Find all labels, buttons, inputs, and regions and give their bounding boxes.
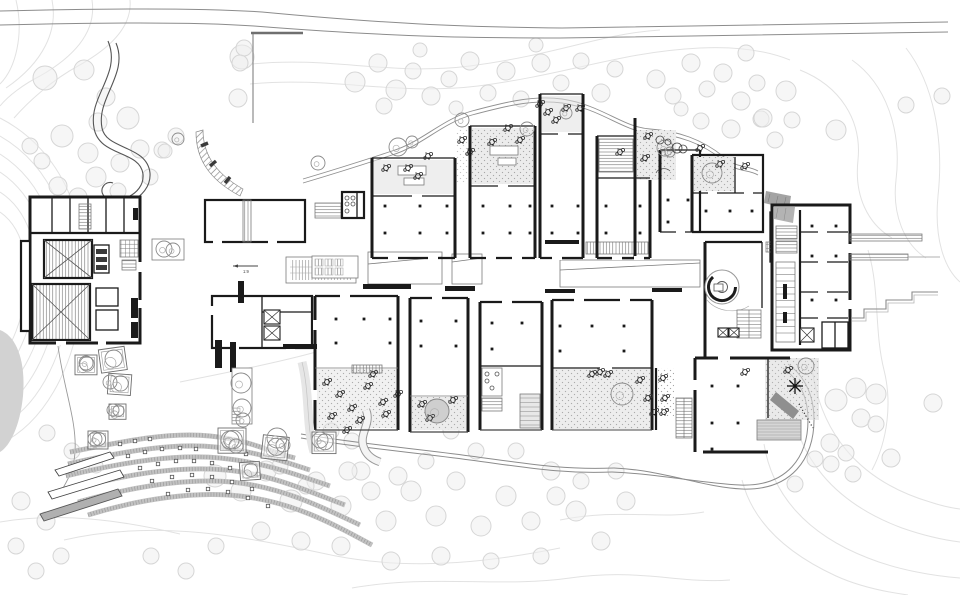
column-dot: [384, 232, 387, 235]
terrace-planter: [126, 454, 129, 457]
scribble-dot: [660, 374, 661, 375]
scribble-dot: [665, 400, 666, 401]
scribble-dot: [563, 104, 564, 105]
terrace-planter: [210, 475, 213, 478]
tree: [376, 98, 392, 114]
tree: [232, 55, 248, 71]
scribble-dot: [645, 160, 646, 161]
scribble: [343, 431, 346, 434]
tree: [447, 472, 465, 490]
terrace-planter: [138, 466, 141, 469]
contour-line: [764, 444, 960, 578]
scribble-dot: [329, 412, 330, 413]
southeast-hall: [693, 356, 819, 452]
scribble-dot: [580, 110, 581, 111]
terrace-planter: [174, 459, 177, 462]
column-dot: [605, 205, 608, 208]
column-dot: [446, 205, 449, 208]
terrace-planter: [228, 466, 231, 469]
tree: [749, 75, 765, 91]
tree: [405, 63, 421, 79]
scribble-dot: [398, 396, 399, 397]
terrace-band: [88, 495, 372, 545]
column-dot: [335, 318, 338, 321]
scribble-dot: [425, 152, 426, 153]
site-plan-page: 1:9: [0, 0, 960, 595]
column-dot: [389, 342, 392, 345]
column-dot: [446, 232, 449, 235]
tree: [339, 462, 357, 480]
column-dot: [751, 210, 754, 213]
tree: [852, 409, 870, 427]
terrace-planter: [226, 490, 229, 493]
scribble-dot: [508, 130, 509, 131]
scribble: [741, 167, 744, 170]
tree: [432, 547, 450, 565]
tree: [532, 54, 550, 72]
scribble-dot: [617, 148, 618, 149]
terrace-planter: [210, 461, 213, 464]
terrace-planter: [170, 475, 173, 478]
classroom-block-3: [540, 94, 583, 260]
column-dot: [737, 385, 740, 388]
stair-band: [599, 139, 633, 172]
scribble-dot: [637, 376, 638, 377]
tree: [529, 38, 543, 52]
scribble-dot: [383, 164, 384, 165]
circle-tree: [311, 156, 325, 170]
stair-arc-band: [196, 130, 243, 196]
scribble-dot: [642, 154, 643, 155]
terrace-planter: [143, 450, 146, 453]
scribble-dot: [608, 376, 609, 377]
tree: [471, 516, 491, 536]
column-dot: [363, 318, 366, 321]
tree: [483, 553, 499, 569]
scribble-dot: [600, 374, 601, 375]
scribble-dot: [386, 416, 387, 417]
column-dot: [491, 348, 494, 351]
scribble-dot: [505, 124, 506, 125]
tree: [362, 482, 380, 500]
scribble-dot: [605, 370, 606, 371]
column-dot: [551, 205, 554, 208]
tree: [51, 125, 73, 147]
scribble-dot: [337, 390, 338, 391]
elevator-shafts: [264, 310, 814, 342]
tree: [807, 451, 823, 467]
scribble-dot: [467, 148, 468, 149]
scribble-dot: [548, 114, 549, 115]
tree: [776, 81, 796, 101]
column-dot: [705, 210, 708, 213]
east-wall-strip: [850, 234, 922, 241]
tree: [34, 153, 50, 169]
tree: [382, 552, 400, 570]
scribble-dot: [577, 104, 578, 105]
scribble-dot: [415, 172, 416, 173]
scribble-dot: [742, 162, 743, 163]
scribble-dot: [427, 414, 428, 415]
tree: [608, 463, 624, 479]
planter: [98, 346, 127, 373]
tree: [882, 449, 900, 467]
elevator-box: [729, 328, 739, 337]
scribble-dot: [742, 368, 743, 369]
tree: [866, 384, 886, 404]
tree: [480, 85, 496, 101]
tree: [28, 563, 44, 579]
tree: [573, 473, 589, 489]
column-dot: [687, 199, 690, 202]
tree: [714, 64, 732, 82]
scribble-dot: [489, 138, 490, 139]
tree: [898, 97, 914, 113]
curved-entry-stair: [196, 130, 243, 196]
column-dot: [529, 232, 532, 235]
elevator-box: [718, 328, 728, 337]
terrace-planter: [206, 487, 209, 490]
column-dot: [639, 232, 642, 235]
column-dot: [521, 322, 524, 325]
column-dot: [811, 255, 814, 258]
contour-line: [742, 480, 908, 595]
scribble-dot: [370, 370, 371, 371]
scribble-dot: [662, 394, 663, 395]
column-dot: [835, 299, 838, 302]
tree: [86, 167, 106, 187]
contour-line: [852, 60, 926, 258]
scribble-dot: [566, 110, 567, 111]
tree: [426, 506, 446, 526]
scribble-dot: [697, 144, 698, 145]
scribble: [536, 105, 539, 108]
tree: [592, 532, 610, 550]
terrace-planter: [192, 459, 195, 462]
path-line: [0, 23, 948, 38]
terrace-planter: [133, 439, 136, 442]
east-wing: [772, 205, 940, 350]
tree: [738, 45, 754, 61]
scribble-dot: [360, 422, 361, 423]
tree: [647, 70, 665, 88]
planter: [75, 355, 97, 375]
tree-planters: [75, 346, 336, 480]
terrace-planter: [186, 488, 189, 491]
tree: [117, 107, 139, 129]
tree: [693, 113, 709, 129]
column-dot: [737, 422, 740, 425]
tree: [422, 87, 440, 105]
scribble-dot: [545, 108, 546, 109]
column-dot: [559, 350, 562, 353]
tree: [158, 144, 172, 158]
column-dot: [509, 205, 512, 208]
scribble-dot: [373, 376, 374, 377]
scribble-dot: [405, 164, 406, 165]
tree: [547, 487, 565, 505]
scribble-dot: [324, 378, 325, 379]
scribble-dot: [470, 154, 471, 155]
tree: [508, 443, 524, 459]
stepped-retaining-wall: [852, 292, 938, 318]
tree: [22, 138, 38, 154]
column-dot: [639, 205, 642, 208]
terrace-planter: [230, 480, 233, 483]
column-dot: [811, 299, 814, 302]
scribble-dot: [648, 138, 649, 139]
tree: [143, 548, 159, 564]
column-dot: [577, 232, 580, 235]
scribble-dot: [365, 382, 366, 383]
scribble-dot: [462, 142, 463, 143]
contour-line: [868, 250, 888, 470]
tree: [533, 548, 549, 564]
scribble-dot: [347, 432, 348, 433]
tree: [823, 456, 839, 472]
terrace-planter: [166, 492, 169, 495]
scribble-dot: [340, 396, 341, 397]
scribble-dot: [717, 160, 718, 161]
terrace-planter: [266, 504, 269, 507]
column-dot: [605, 232, 608, 235]
planter: [312, 432, 336, 454]
tree: [39, 425, 55, 441]
tree: [838, 445, 854, 461]
terrace-planter: [190, 473, 193, 476]
scribble-dot: [664, 414, 665, 415]
contour-line: [0, 518, 180, 534]
column-dot: [419, 232, 422, 235]
scribble-dot: [395, 390, 396, 391]
scribble-dot: [537, 100, 538, 101]
tree: [825, 389, 847, 411]
tree: [441, 71, 457, 87]
scribble-dot: [520, 142, 521, 143]
scribble-dot: [517, 136, 518, 137]
column-dot: [667, 199, 670, 202]
column-dot: [384, 205, 387, 208]
tree: [8, 538, 24, 554]
tree: [592, 84, 610, 102]
tree: [784, 112, 800, 128]
tree: [682, 54, 700, 72]
tree: [496, 486, 516, 506]
tree: [699, 81, 715, 97]
tree: [12, 492, 30, 510]
scribble-dot: [663, 380, 664, 381]
column-dot: [811, 225, 814, 228]
scribble-dot: [645, 132, 646, 133]
tree: [33, 66, 57, 90]
tree: [665, 88, 681, 104]
tree: [401, 481, 421, 501]
scribble-dot: [380, 398, 381, 399]
small-circle: [679, 145, 687, 153]
louver-canopy: [315, 203, 341, 218]
tree: [522, 512, 540, 530]
south-block-4: [552, 298, 652, 430]
scribble-dot: [344, 426, 345, 427]
tree: [617, 492, 635, 510]
scribble-dot: [450, 396, 451, 397]
column-dot: [835, 255, 838, 258]
tree: [376, 511, 396, 531]
contour-line: [906, 48, 960, 282]
tree: [497, 62, 515, 80]
tree: [767, 132, 783, 148]
column-dot: [529, 205, 532, 208]
scribble-dot: [645, 394, 646, 395]
scribble-dot: [459, 136, 460, 137]
tree: [229, 89, 247, 107]
scribble-dot: [654, 414, 655, 415]
planter: [239, 461, 260, 480]
column-dot: [455, 320, 458, 323]
scribble-dot: [418, 178, 419, 179]
south-block-3: [480, 300, 542, 430]
scribble-dot: [620, 154, 621, 155]
tree: [53, 548, 69, 564]
column-dot: [491, 322, 494, 325]
scribble-dot: [745, 374, 746, 375]
scribble-dot: [788, 372, 789, 373]
terrace-planter: [150, 479, 153, 482]
scribble-dot: [453, 402, 454, 403]
scribble-dot: [327, 384, 328, 385]
scribble-dot: [589, 370, 590, 371]
ramp-annotation: 1:9: [233, 264, 258, 274]
tree: [178, 563, 194, 579]
tree: [89, 113, 107, 131]
tree: [78, 143, 98, 163]
column-dot: [623, 350, 626, 353]
scribble-dot: [700, 150, 701, 151]
column-dot: [623, 325, 626, 328]
column-dot: [389, 318, 392, 321]
scribble-dot: [349, 404, 350, 405]
column-dot: [335, 342, 338, 345]
palm-tree: [787, 378, 803, 394]
column-dot: [482, 232, 485, 235]
scribble-dot: [352, 410, 353, 411]
scribble-dot: [640, 382, 641, 383]
scribble-dot: [492, 144, 493, 145]
column-dot: [455, 345, 458, 348]
scribble-dot: [383, 404, 384, 405]
scribble-dot: [597, 368, 598, 369]
ramp-slope-label: 1:9: [243, 269, 249, 274]
terrace-planter: [194, 447, 197, 450]
scribble-dot: [383, 410, 384, 411]
path-line: [0, 9, 948, 28]
tree: [573, 53, 589, 69]
auditorium-building: [21, 197, 184, 345]
tree: [821, 434, 839, 452]
circle-tree-inner: [314, 162, 319, 167]
palm-center: [793, 384, 796, 387]
column-dot: [420, 320, 423, 323]
scribble-dot: [553, 116, 554, 117]
scribble-dot: [332, 418, 333, 419]
tree: [607, 61, 623, 77]
elevator-box: [264, 326, 280, 340]
tree: [924, 394, 942, 412]
east-wall-strip: [850, 254, 908, 260]
stair-court-strip: [656, 368, 692, 438]
tree: [332, 537, 350, 555]
tree: [732, 92, 750, 110]
column-dot: [835, 225, 838, 228]
contour-line: [0, 0, 19, 84]
column-dot: [509, 232, 512, 235]
tree: [345, 72, 365, 92]
contour-line: [352, 575, 730, 588]
scribble: [741, 373, 744, 376]
column-dot: [577, 205, 580, 208]
column-dot: [711, 422, 714, 425]
scribble-dot: [419, 400, 420, 401]
terrace-planter: [250, 487, 253, 490]
classroom-block-1: [372, 158, 455, 260]
tree: [566, 501, 586, 521]
tree: [389, 467, 407, 485]
tree: [934, 88, 950, 104]
scribble-dot: [422, 406, 423, 407]
tree: [845, 466, 861, 482]
tree: [413, 43, 427, 57]
terrace-planter: [246, 496, 249, 499]
scribble-tree: [741, 368, 750, 375]
tree: [74, 60, 94, 80]
tree: [97, 88, 115, 106]
tree: [111, 154, 129, 172]
column-dot: [482, 205, 485, 208]
scribble-dot: [540, 106, 541, 107]
terrace-planter: [156, 462, 159, 465]
tree: [49, 177, 67, 195]
scribble-dot: [428, 158, 429, 159]
column-dot: [591, 325, 594, 328]
classroom-block-2: [456, 126, 535, 260]
tree: [461, 52, 479, 70]
scribble-dot: [408, 170, 409, 171]
column-dot: [419, 205, 422, 208]
scribble-dot: [651, 408, 652, 409]
column-dot: [729, 210, 732, 213]
tree: [868, 416, 884, 432]
tree: [236, 40, 252, 56]
tree: [553, 75, 569, 91]
tree: [208, 538, 224, 554]
column-dot: [559, 325, 562, 328]
scribble-dot: [357, 416, 358, 417]
scribble-dot: [745, 168, 746, 169]
site-plan-drawing: 1:9: [0, 0, 960, 595]
column-dot: [667, 221, 670, 224]
terrace-planter: [178, 446, 181, 449]
terrace-planter: [118, 442, 121, 445]
scribble-dot: [592, 376, 593, 377]
tree: [754, 109, 772, 127]
scribble-dot: [648, 400, 649, 401]
tree: [787, 476, 803, 492]
column-dot: [420, 345, 423, 348]
scribble-dot: [556, 122, 557, 123]
tree: [369, 54, 387, 72]
elevator-box: [800, 328, 814, 342]
column-dot: [711, 385, 714, 388]
